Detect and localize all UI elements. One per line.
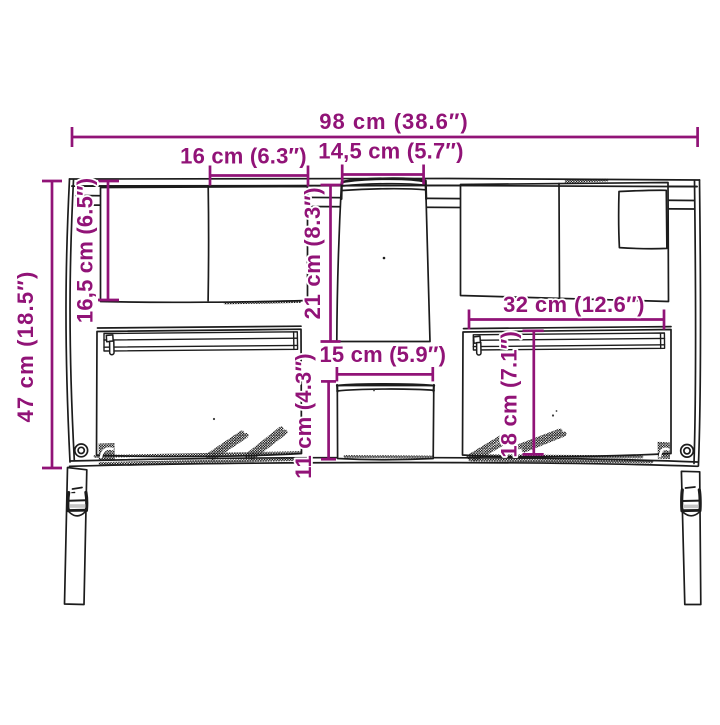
svg-text:18 cm (7.1″): 18 cm (7.1″) xyxy=(497,331,522,458)
svg-text:16,5 cm (6.5″): 16,5 cm (6.5″) xyxy=(73,178,98,323)
svg-text:32 cm (12.6″): 32 cm (12.6″) xyxy=(503,292,645,317)
svg-text:14,5 cm (5.7″): 14,5 cm (5.7″) xyxy=(318,139,463,164)
svg-text:21 cm (8.3″): 21 cm (8.3″) xyxy=(300,187,325,320)
svg-text:16 cm (6.3″): 16 cm (6.3″) xyxy=(180,143,307,168)
svg-text:15 cm (5.9″): 15 cm (5.9″) xyxy=(319,342,446,367)
svg-text:47 cm (18.5″): 47 cm (18.5″) xyxy=(13,270,38,422)
svg-text:11 cm (4.3″): 11 cm (4.3″) xyxy=(291,353,316,478)
svg-text:98 cm (38.6″): 98 cm (38.6″) xyxy=(319,109,469,134)
